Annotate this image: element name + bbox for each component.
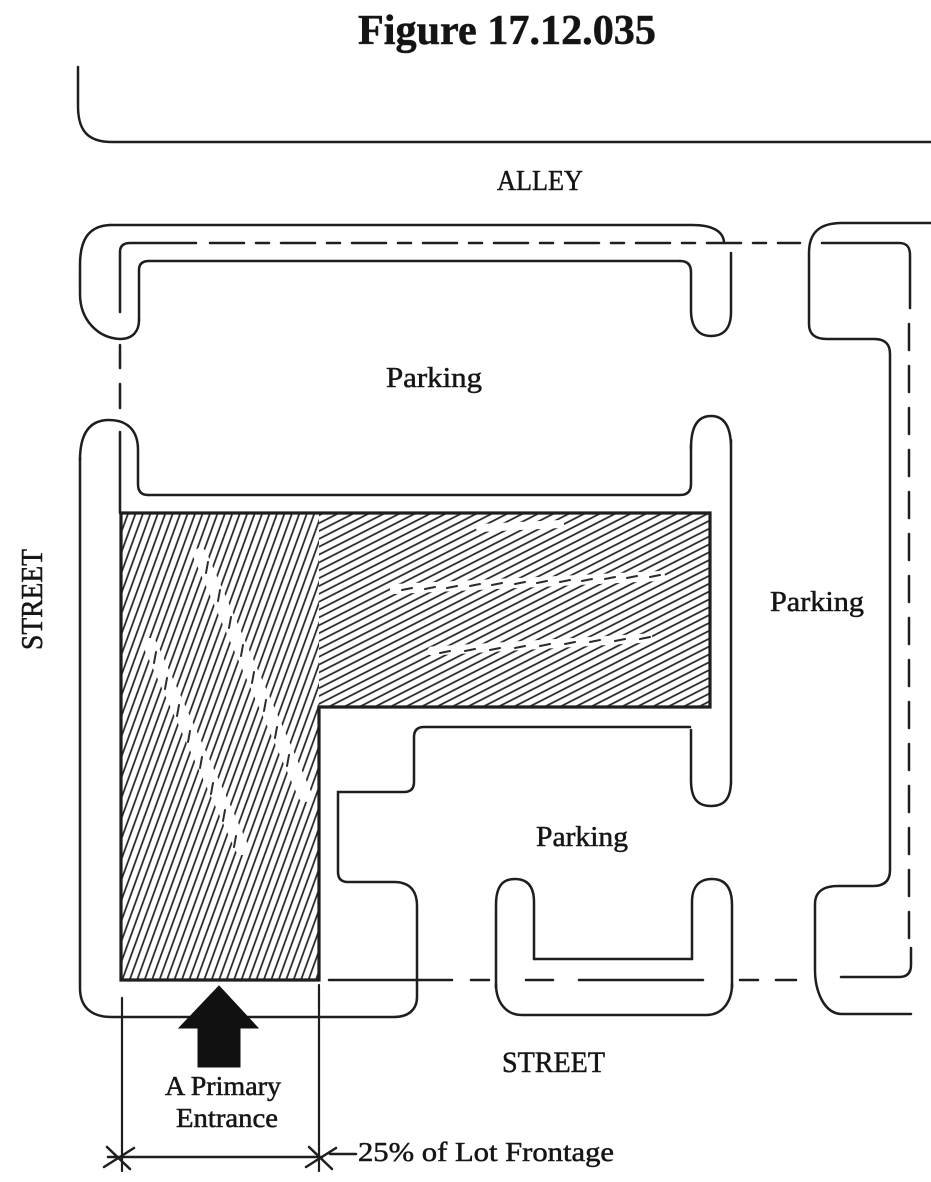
svg-text:ALLEY: ALLEY — [497, 165, 583, 197]
svg-text:Figure 17.12.035: Figure 17.12.035 — [358, 8, 656, 54]
svg-text:STREET: STREET — [14, 549, 49, 650]
svg-text:25% of Lot Frontage: 25% of Lot Frontage — [358, 1137, 614, 1167]
svg-text:Parking: Parking — [536, 822, 628, 853]
svg-text:STREET: STREET — [502, 1046, 605, 1079]
svg-text:Parking: Parking — [386, 363, 482, 394]
svg-text:A Primary: A Primary — [165, 1071, 282, 1101]
svg-text:Entrance: Entrance — [176, 1103, 278, 1133]
svg-text:Parking: Parking — [770, 587, 864, 618]
